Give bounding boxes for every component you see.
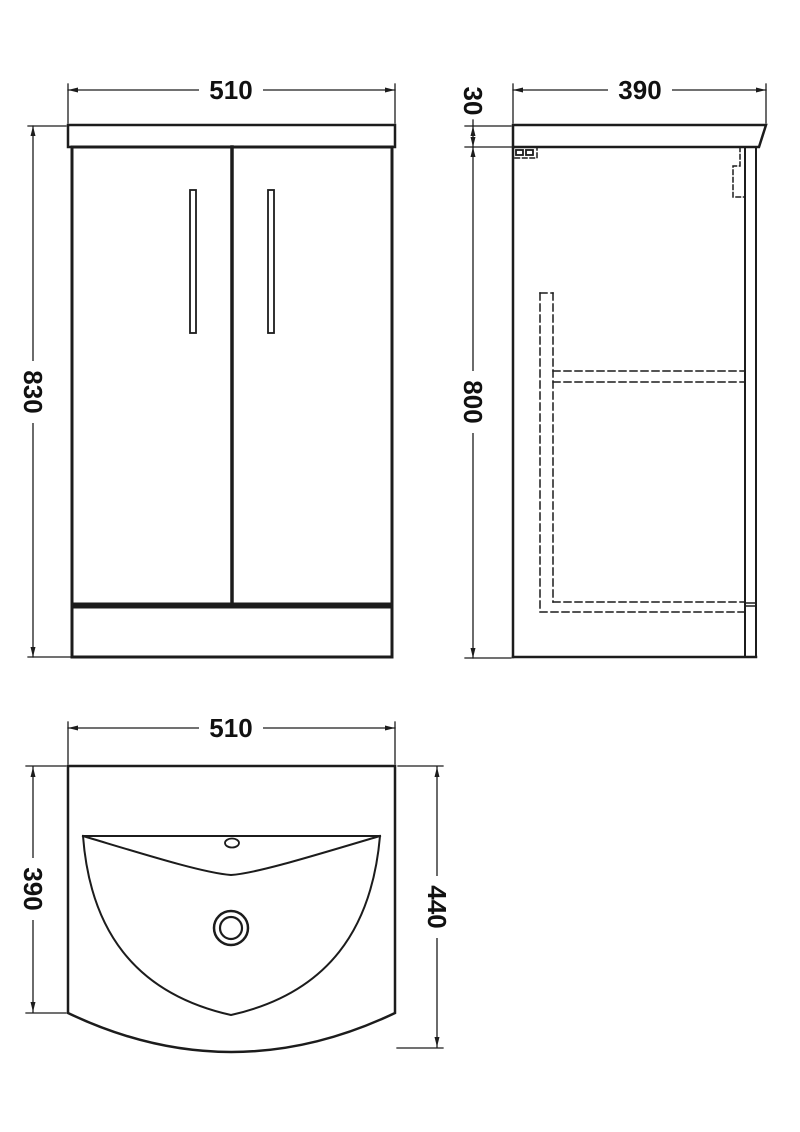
worktop-thickness-label: 30 (458, 87, 488, 116)
front-view: 510 830 (18, 75, 395, 657)
waste-hole-inner (220, 917, 242, 939)
vanity-technical-drawing: 510 830 (0, 0, 800, 1132)
plan-width-dimension: 510 (68, 713, 395, 764)
drawing-canvas: 510 830 (0, 0, 800, 1132)
basin-outline (68, 766, 395, 1052)
hinge-screw-slot (516, 150, 523, 155)
bowl-rim (83, 836, 380, 1015)
side-view: 390 30 800 (458, 75, 766, 658)
side-height-dimension: 800 (458, 147, 511, 658)
hidden-shelf (553, 371, 745, 382)
front-height-dimension: 830 (18, 126, 70, 657)
left-door-handle (190, 190, 196, 333)
hidden-internal-panel (540, 293, 745, 612)
front-height-label: 830 (18, 370, 48, 413)
worktop-thickness-dimension: 30 (458, 87, 511, 147)
plan-overall-depth-dimension: 440 (397, 766, 452, 1048)
side-depth-dimension: 390 (513, 75, 766, 123)
side-depth-label: 390 (618, 75, 661, 105)
overflow-hole (225, 839, 239, 848)
side-worktop (513, 125, 766, 147)
front-plinth (72, 607, 392, 657)
right-door-handle (268, 190, 274, 333)
front-width-label: 510 (209, 75, 252, 105)
plan-basin-depth-dimension: 390 (18, 766, 66, 1013)
hinge-screw-slot (526, 150, 533, 155)
front-worktop (68, 125, 395, 147)
bowl-inner-slope (83, 836, 380, 875)
plan-basin-depth-label: 390 (18, 867, 48, 910)
hidden-hinge-arm (733, 147, 745, 197)
basin-plan-view: 510 390 440 (18, 713, 452, 1052)
plan-width-label: 510 (209, 713, 252, 743)
front-width-dimension: 510 (68, 75, 395, 123)
side-height-label: 800 (458, 380, 488, 423)
plan-overall-depth-label: 440 (422, 885, 452, 928)
hidden-hinge-plate (513, 147, 537, 158)
